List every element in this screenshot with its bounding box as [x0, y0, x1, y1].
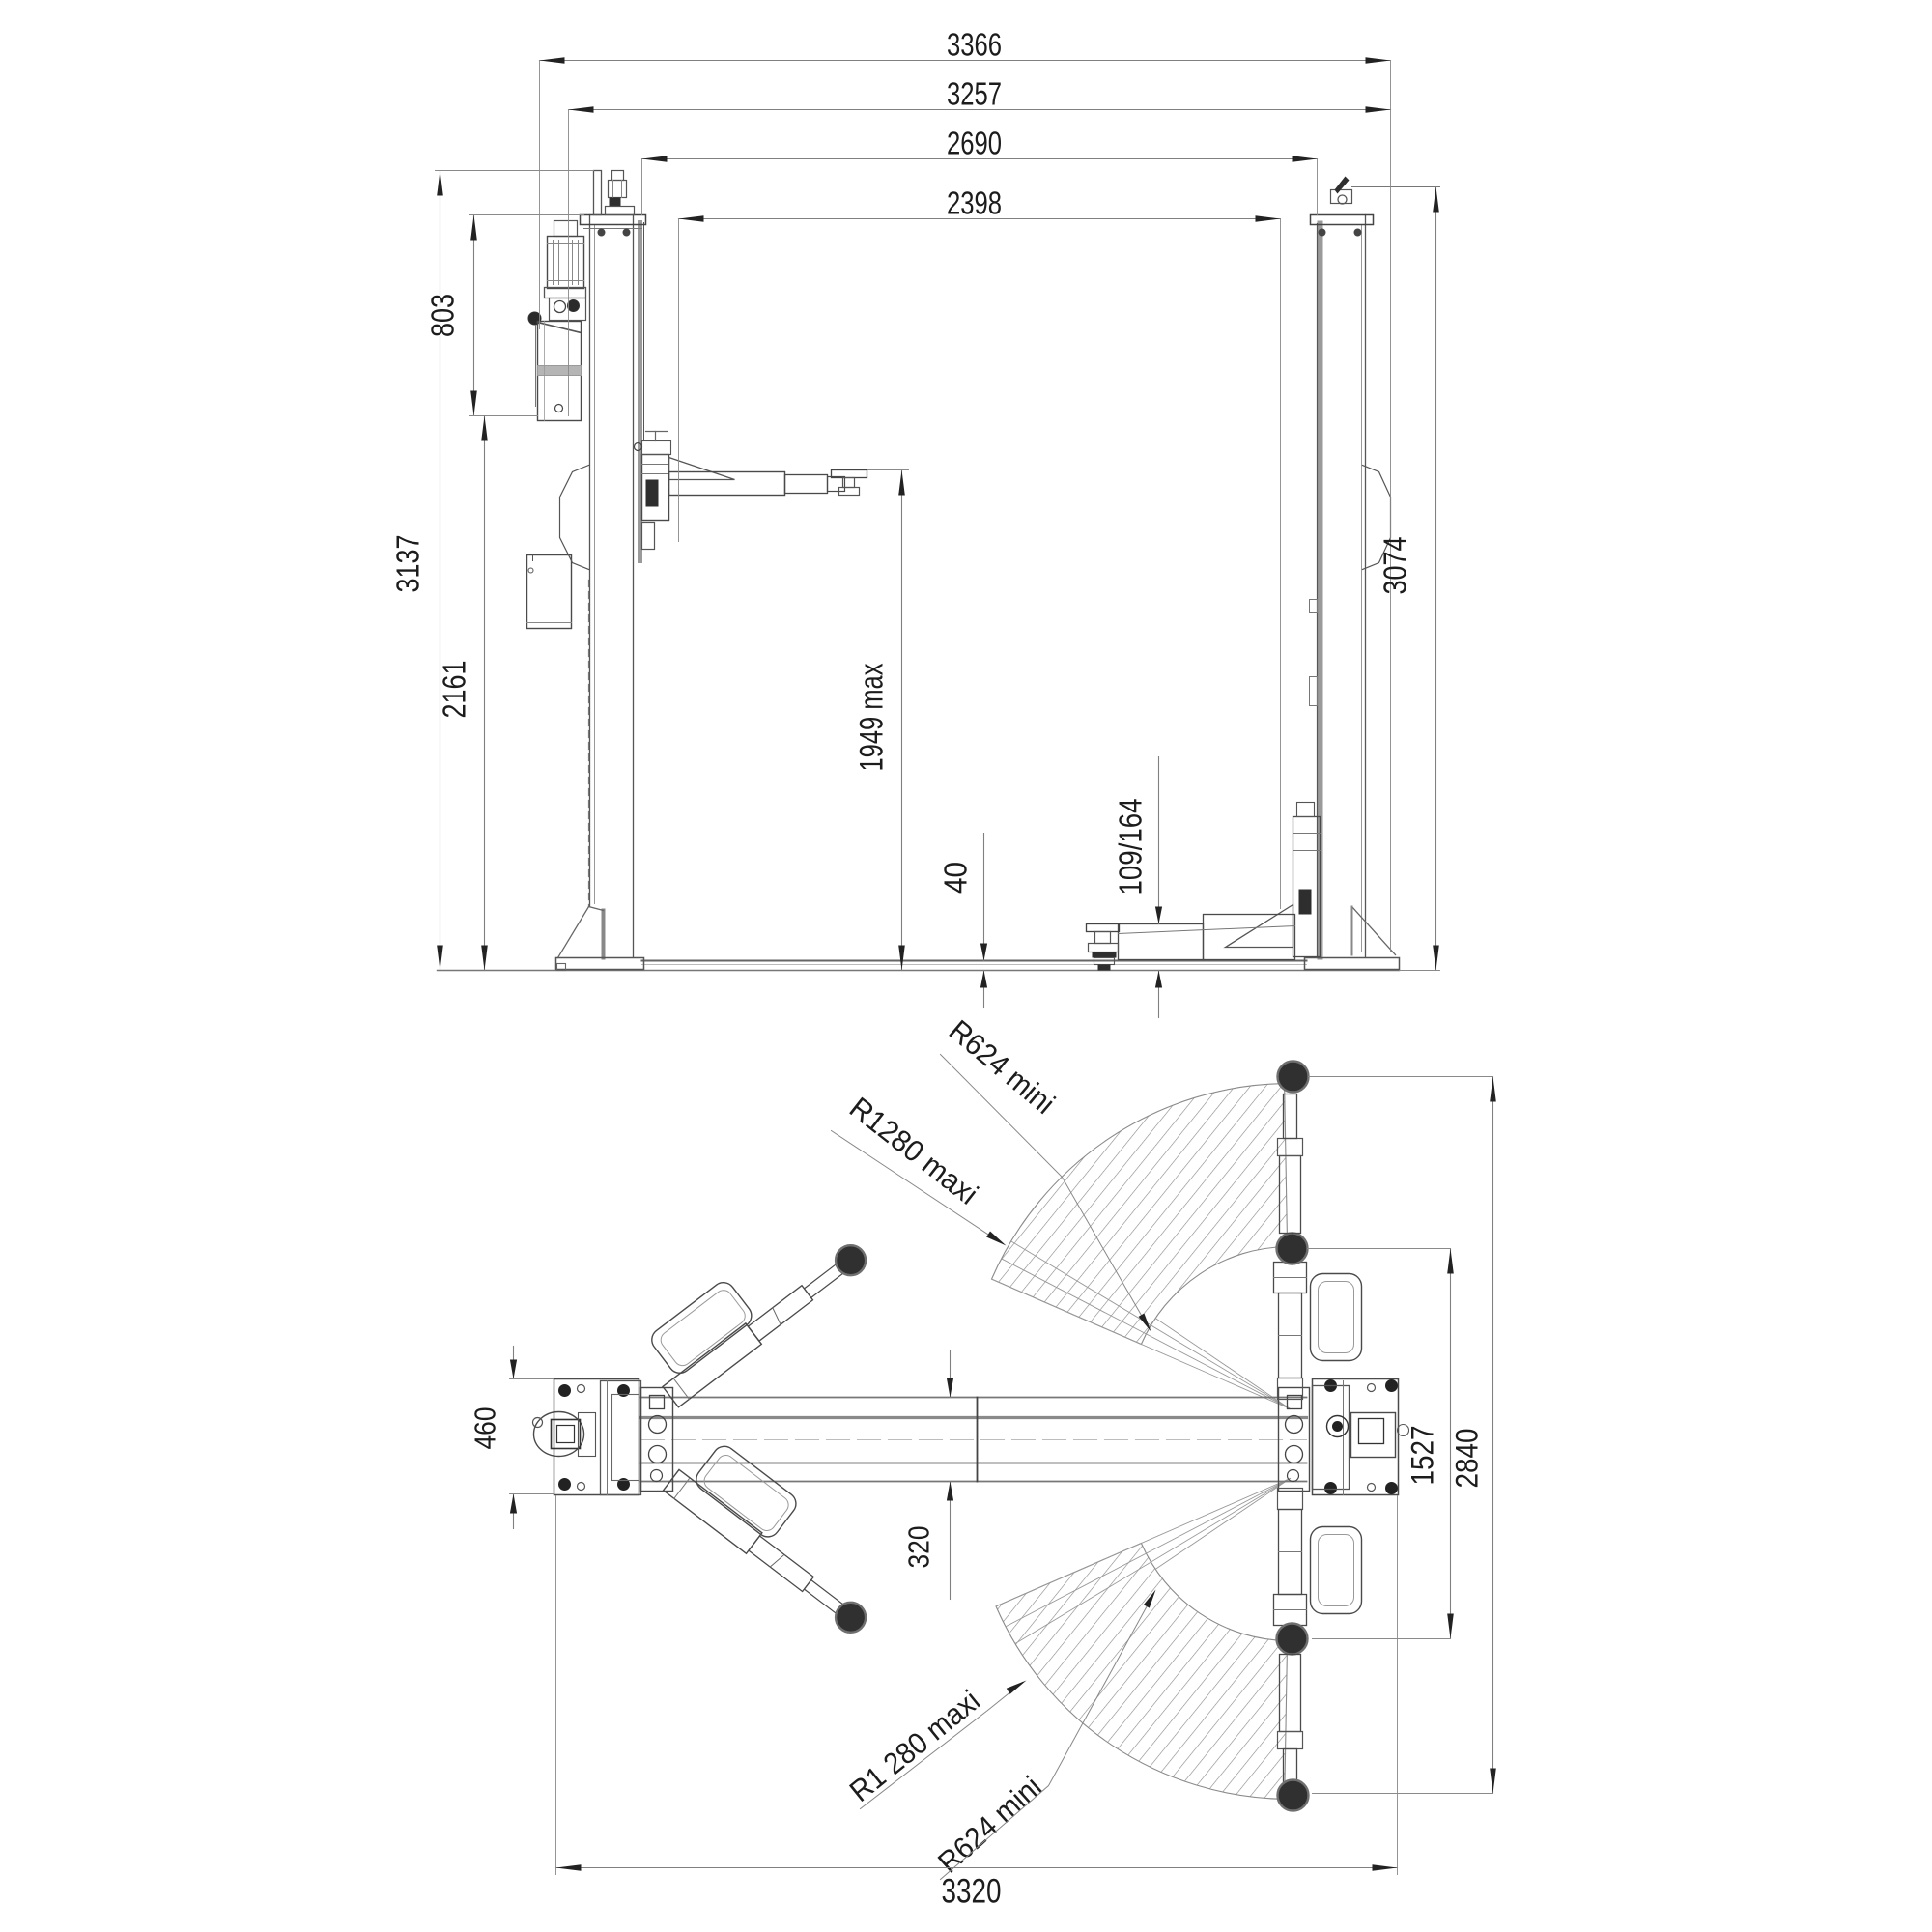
svg-text:1949 max: 1949 max: [854, 664, 891, 772]
svg-text:3074: 3074: [1378, 537, 1413, 595]
svg-text:2840: 2840: [1450, 1429, 1485, 1489]
svg-text:2161: 2161: [437, 661, 472, 719]
svg-text:3137: 3137: [390, 535, 426, 593]
svg-text:2690: 2690: [947, 126, 1002, 161]
svg-text:320: 320: [902, 1526, 936, 1569]
svg-text:109/164: 109/164: [1113, 799, 1149, 895]
svg-text:1527: 1527: [1406, 1426, 1440, 1486]
svg-text:3257: 3257: [947, 76, 1002, 112]
svg-text:2398: 2398: [947, 185, 1002, 221]
svg-text:803: 803: [425, 294, 461, 337]
svg-text:460: 460: [469, 1407, 502, 1450]
svg-text:3320: 3320: [942, 1873, 1002, 1911]
svg-text:40: 40: [938, 862, 974, 894]
svg-text:3366: 3366: [947, 27, 1002, 63]
